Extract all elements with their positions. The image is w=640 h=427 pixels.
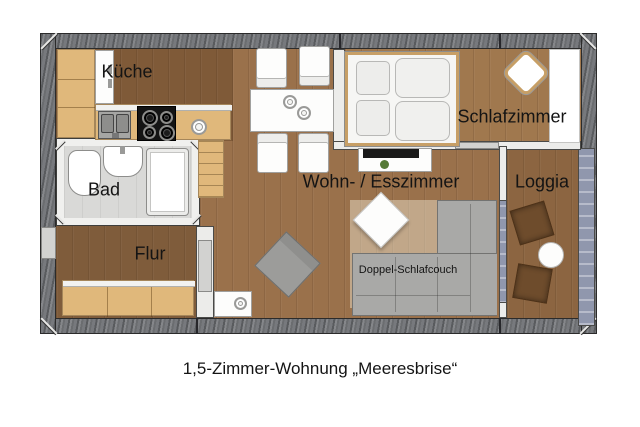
bed-duvet xyxy=(395,101,450,141)
stove-burner xyxy=(159,125,175,141)
kitchen-round-sink xyxy=(191,119,207,135)
stove-burner xyxy=(160,111,173,124)
wardrobe-top-edge xyxy=(63,281,195,287)
kitchen-sink xyxy=(98,111,131,139)
wall-joint xyxy=(339,33,341,49)
shower-tub xyxy=(146,148,189,216)
kitchen-label: Küche xyxy=(101,62,152,83)
dining-chair xyxy=(257,133,288,173)
hallway-label: Flur xyxy=(135,244,166,265)
exterior-wall-left xyxy=(40,33,56,334)
bed-pillow xyxy=(356,61,390,95)
wall-joint xyxy=(499,33,501,49)
sink-basin xyxy=(116,114,129,133)
entrance-door xyxy=(41,227,56,259)
bedroom-door xyxy=(455,142,499,149)
kitchen-shelf-unit xyxy=(198,140,224,198)
loggia-door-frame xyxy=(499,146,507,202)
wardrobe-division xyxy=(107,287,108,317)
bedroom-label: Schlafzimmer xyxy=(457,107,566,128)
loggia-divider-post xyxy=(499,302,507,318)
plant-icon xyxy=(380,160,389,169)
loggia-glass-wall xyxy=(578,148,595,326)
sink-basin xyxy=(101,114,114,133)
dining-chair xyxy=(298,133,329,173)
room-bathroom xyxy=(56,138,200,226)
wall-joint xyxy=(499,318,501,334)
stove xyxy=(137,106,176,141)
sideboard-ring xyxy=(234,297,247,310)
living-label: Wohn- / Esszimmer xyxy=(303,172,460,193)
counter-division xyxy=(58,79,96,80)
bed-pillow xyxy=(356,100,390,136)
bedroom-wardrobe xyxy=(549,49,580,143)
hallway-door xyxy=(198,240,212,292)
dining-chair xyxy=(299,46,330,86)
sofa-bench xyxy=(352,253,497,316)
table-decor-plate xyxy=(283,95,297,109)
exterior-wall-bottom xyxy=(40,318,597,334)
wardrobe-division xyxy=(151,287,152,317)
sofa-label: Doppel-Schlafcouch xyxy=(359,264,457,276)
loggia-chair xyxy=(512,263,553,304)
faucet-icon xyxy=(112,133,119,138)
loggia-divider-glass xyxy=(499,200,507,304)
counter-division xyxy=(58,107,96,108)
stove-burner xyxy=(143,126,156,139)
plan-caption: 1,5-Zimmer-Wohnung „Meeresbrise“ xyxy=(0,359,640,379)
hallway-wardrobe xyxy=(62,280,194,316)
bed xyxy=(345,52,459,146)
loggia-table xyxy=(538,242,564,268)
sofa-seam xyxy=(470,204,471,312)
table-decor-plate xyxy=(297,106,311,120)
bedroom-left-wall xyxy=(333,49,345,147)
tv xyxy=(363,149,419,158)
dining-chair xyxy=(256,48,287,88)
sofa-seam xyxy=(356,295,470,296)
stove-burner xyxy=(142,110,158,126)
wall-joint xyxy=(196,318,198,334)
corner-bevel xyxy=(191,214,201,224)
bed-duvet xyxy=(395,58,450,98)
bathroom-label: Bad xyxy=(88,180,120,201)
kitchen-counter-left xyxy=(57,49,95,138)
loggia-label: Loggia xyxy=(515,172,569,193)
faucet-icon xyxy=(120,146,125,154)
